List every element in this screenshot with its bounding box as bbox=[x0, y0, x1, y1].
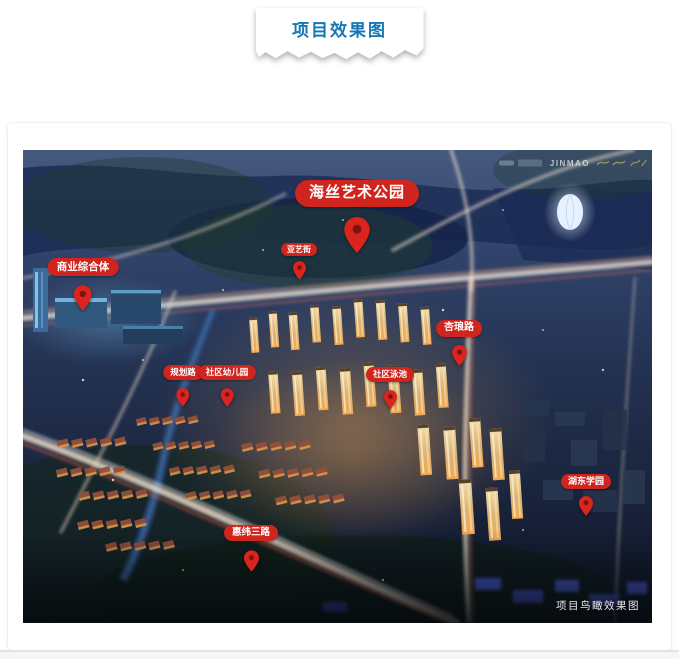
pin-label-planned-road: 规划路 bbox=[163, 365, 203, 380]
partner-logo-marks bbox=[499, 157, 545, 169]
map-pin-planned-road: 规划路 bbox=[163, 365, 203, 407]
pin-label-xinglang-road: 杏琅路 bbox=[436, 320, 482, 337]
pin-label-commercial-complex: 商业综合体 bbox=[48, 258, 119, 276]
pin-label-huiwei-3rd-road: 惠纬三路 bbox=[224, 525, 278, 541]
location-pin-icon bbox=[579, 496, 593, 516]
location-pin-icon bbox=[344, 217, 370, 253]
location-pin-icon bbox=[176, 388, 189, 407]
location-pin-icon bbox=[220, 388, 233, 407]
pin-label-community-pool: 社区泳池 bbox=[366, 367, 414, 382]
location-pin-icon bbox=[452, 345, 467, 366]
project-rendering-image[interactable]: JINMAO 海丝艺术公园 商业综合体 亚艺街 杏琅路 bbox=[23, 150, 652, 623]
map-pin-haisi-art-park: 海丝艺术公园 bbox=[295, 180, 419, 253]
content-panel: JINMAO 海丝艺术公园 商业综合体 亚艺街 杏琅路 bbox=[8, 123, 671, 650]
map-pin-yayi-street: 亚艺街 bbox=[281, 243, 317, 280]
calligraphy-logo bbox=[595, 157, 647, 169]
map-pin-community-kindergarten: 社区幼儿园 bbox=[199, 365, 256, 407]
pin-label-community-kindergarten: 社区幼儿园 bbox=[199, 365, 256, 380]
torn-paper-card: 项目效果图 bbox=[256, 8, 424, 62]
image-caption: 项目鸟瞰效果图 bbox=[556, 598, 640, 613]
map-pin-xinglang-road: 杏琅路 bbox=[436, 320, 482, 366]
location-pin-icon bbox=[383, 390, 396, 409]
map-pin-huiwei-3rd-road: 惠纬三路 bbox=[224, 525, 278, 572]
pin-label-haisi-art-park: 海丝艺术公园 bbox=[295, 180, 419, 207]
location-pin-icon bbox=[293, 261, 306, 280]
watermark-brand-text: JINMAO bbox=[550, 159, 590, 168]
section-tab: 项目效果图 bbox=[256, 8, 424, 62]
map-pin-community-pool: 社区泳池 bbox=[366, 367, 414, 409]
map-pin-commercial-complex: 商业综合体 bbox=[48, 258, 119, 311]
location-pin-icon bbox=[74, 285, 92, 311]
location-pin-icon bbox=[243, 550, 258, 572]
section-tab-title: 项目效果图 bbox=[292, 21, 387, 41]
pin-label-hudong-school: 湖东学园 bbox=[561, 474, 611, 489]
next-section-divider bbox=[0, 650, 679, 659]
page: 项目效果图 bbox=[0, 0, 679, 659]
watermark-logos: JINMAO bbox=[499, 157, 647, 169]
pin-label-yayi-street: 亚艺街 bbox=[281, 243, 317, 256]
map-pin-hudong-school: 湖东学园 bbox=[561, 474, 611, 516]
